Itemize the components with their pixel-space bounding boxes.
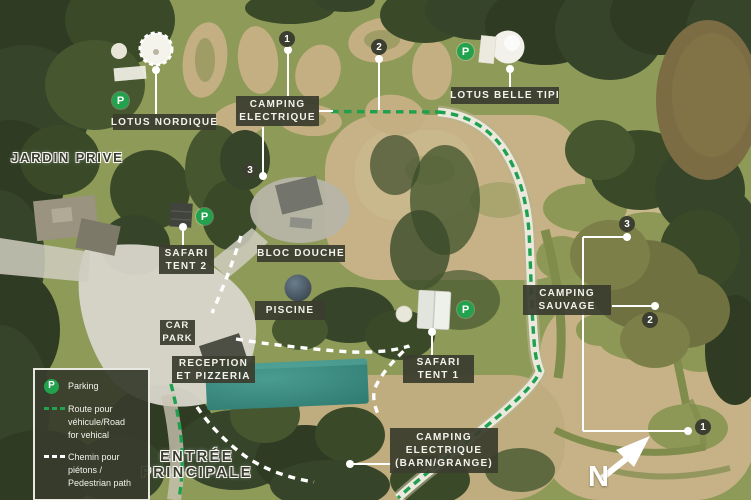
label-text: CAMPING <box>539 287 595 300</box>
label-text: (BARN/GRANGE) <box>395 457 493 470</box>
parking-marker-safari-tent-1: P <box>457 301 474 318</box>
label-entree-principale: ENTRÉE PRINCIPALE <box>134 450 260 482</box>
pedestrian-path-dash-icon <box>44 455 66 458</box>
label-text: CAMPING <box>250 98 306 111</box>
legend-icon-cell <box>44 452 68 458</box>
label-text: RECEPTION <box>179 357 248 370</box>
campsite-map: LOTUS NORDIQUE CAMPING ELECTRIQUE LOTUS … <box>0 0 751 500</box>
label-text: PARK <box>162 333 192 345</box>
legend-row-parking: P Parking <box>44 380 139 394</box>
legend-text-line: véhicule/Road <box>68 416 125 429</box>
dome-tent <box>285 275 312 302</box>
label-text: ET PIZZERIA <box>176 370 250 383</box>
label-text: PRINCIPALE <box>134 466 260 482</box>
label-camping-electrique: CAMPING ELECTRIQUE <box>236 96 319 126</box>
legend-pedestrian-label: Chemin pour piétons / Pedestrian path <box>68 451 131 490</box>
label-text: LOTUS BELLE TIPI <box>450 89 560 102</box>
label-reception-et-pizzeria: RECEPTION ET PIZZERIA <box>172 356 255 383</box>
legend-icon-cell: P <box>44 381 68 394</box>
legend-text-line: for vehical <box>68 429 125 442</box>
label-lotus-belle-tipi: LOTUS BELLE TIPI <box>451 87 559 104</box>
compass-north-label: N <box>588 461 609 494</box>
pitch-marker-2-top: 2 <box>371 39 387 55</box>
label-text: CAMPING <box>416 431 472 444</box>
pitch-marker-3-right: 3 <box>619 216 635 232</box>
legend-text-line: Pedestrian path <box>68 477 131 490</box>
vehicle-route-dash-icon <box>44 407 66 410</box>
parking-marker-safari-tent-2: P <box>196 208 213 225</box>
legend-text-line: piétons / <box>68 464 131 477</box>
label-text: BLOC DOUCHE <box>257 247 345 260</box>
safari-tent-1-dome <box>396 306 412 322</box>
pitch-marker-2-right: 2 <box>642 312 658 328</box>
label-camping-electrique-barn: CAMPING ELECTRIQUE (BARN/GRANGE) <box>390 428 498 473</box>
label-text: TENT 1 <box>418 369 460 382</box>
label-safari-tent-2: SAFARI TENT 2 <box>159 245 214 274</box>
legend-text-line: Route pour <box>68 403 125 416</box>
label-piscine: PISCINE <box>255 301 325 320</box>
pitch-marker-3-mid: 3 <box>242 162 258 178</box>
label-safari-tent-1: SAFARI TENT 1 <box>403 355 474 383</box>
label-text: CAR <box>166 320 190 332</box>
label-text: TENT 2 <box>166 260 208 273</box>
label-text: ELECTRIQUE <box>406 444 482 457</box>
label-text: PISCINE <box>266 304 314 317</box>
label-camping-sauvage: CAMPING SAUVAGE <box>523 285 611 315</box>
label-text: SAUVAGE <box>538 300 595 313</box>
legend-parking-label: Parking <box>68 380 99 393</box>
label-lotus-nordique: LOTUS NORDIQUE <box>113 114 216 130</box>
legend-route-label: Route pour véhicule/Road for vehical <box>68 403 125 442</box>
parking-icon: P <box>44 379 59 394</box>
legend-icon-cell <box>44 404 68 410</box>
label-text: SAFARI <box>417 356 461 369</box>
safari-tent-1-structure <box>417 290 451 330</box>
label-car-park: CAR PARK <box>160 320 195 345</box>
parking-marker-belle-tipi: P <box>457 43 474 60</box>
legend-row-pedestrian: Chemin pour piétons / Pedestrian path <box>44 451 139 490</box>
parking-marker-lotus-nordique: P <box>112 92 129 109</box>
map-legend: P Parking Route pour véhicule/Road for v… <box>33 368 150 500</box>
legend-text-line: Chemin pour <box>68 451 131 464</box>
label-bloc-douche: BLOC DOUCHE <box>257 245 345 262</box>
legend-row-route: Route pour véhicule/Road for vehical <box>44 403 139 442</box>
label-text: LOTUS NORDIQUE <box>111 116 218 129</box>
pitch-marker-1-right: 1 <box>695 419 711 435</box>
label-jardin-prive: JARDIN PRIVE <box>11 150 124 165</box>
pitch-marker-1-top: 1 <box>279 31 295 47</box>
label-text: SAFARI <box>165 247 209 260</box>
label-text: ELECTRIQUE <box>239 111 315 124</box>
label-text: ENTRÉE <box>134 450 260 466</box>
